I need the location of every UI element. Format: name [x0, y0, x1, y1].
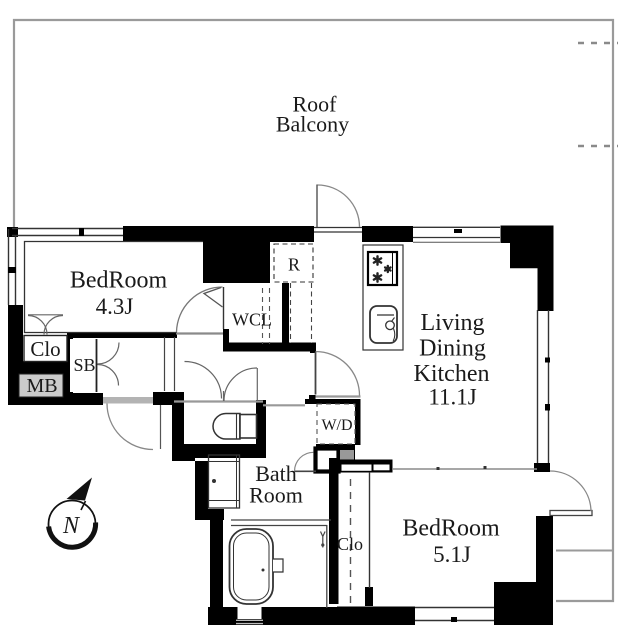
svg-text:4.3J: 4.3J: [96, 294, 134, 319]
svg-text:WCL: WCL: [232, 310, 272, 330]
svg-text:W/D: W/D: [321, 417, 352, 434]
svg-text:Dining: Dining: [419, 336, 486, 362]
svg-text:Living: Living: [421, 310, 485, 336]
svg-text:N: N: [62, 513, 81, 539]
svg-text:SB: SB: [73, 355, 95, 375]
svg-text:Room: Room: [249, 483, 303, 508]
svg-text:MB: MB: [26, 375, 57, 397]
svg-text:Clo: Clo: [30, 337, 60, 361]
svg-text:R: R: [288, 255, 300, 275]
svg-text:BedRoom: BedRoom: [402, 516, 500, 542]
svg-text:Kitchen: Kitchen: [414, 361, 490, 387]
svg-text:Balcony: Balcony: [276, 112, 349, 137]
svg-text:BedRoom: BedRoom: [70, 268, 168, 294]
svg-text:11.1J: 11.1J: [428, 385, 476, 410]
svg-text:5.1J: 5.1J: [433, 542, 471, 567]
svg-text:Clo: Clo: [337, 534, 363, 554]
